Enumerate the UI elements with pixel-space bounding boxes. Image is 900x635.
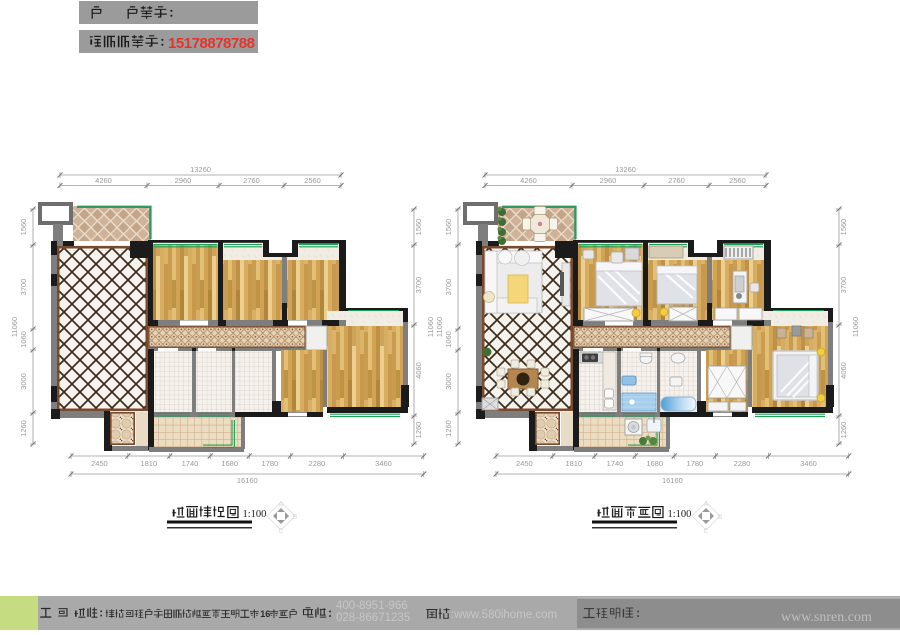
svg-text:13260: 13260 bbox=[615, 165, 636, 174]
svg-text:1260: 1260 bbox=[19, 420, 28, 437]
svg-text:2280: 2280 bbox=[734, 459, 751, 468]
svg-text:16160: 16160 bbox=[237, 476, 258, 485]
svg-text:1780: 1780 bbox=[687, 459, 704, 468]
svg-text:1260: 1260 bbox=[839, 422, 848, 439]
svg-text:1060: 1060 bbox=[19, 331, 28, 348]
svg-text:1560: 1560 bbox=[444, 219, 453, 236]
svg-text:13260: 13260 bbox=[190, 165, 211, 174]
svg-text:1810: 1810 bbox=[565, 459, 582, 468]
svg-text:1:100: 1:100 bbox=[243, 509, 267, 520]
svg-text:4060: 4060 bbox=[414, 362, 423, 379]
svg-text:11060: 11060 bbox=[851, 317, 860, 337]
svg-text:1810: 1810 bbox=[140, 459, 157, 468]
svg-text:3700: 3700 bbox=[19, 279, 28, 296]
svg-text:2960: 2960 bbox=[600, 176, 617, 185]
svg-text:3460: 3460 bbox=[375, 459, 392, 468]
svg-text:16160: 16160 bbox=[662, 476, 683, 485]
svg-text:1560: 1560 bbox=[414, 219, 423, 236]
svg-text:11060: 11060 bbox=[435, 317, 444, 337]
svg-text:B: B bbox=[718, 514, 723, 521]
svg-text:2450: 2450 bbox=[516, 459, 533, 468]
svg-text:3460: 3460 bbox=[800, 459, 817, 468]
svg-text:1740: 1740 bbox=[182, 459, 199, 468]
svg-text:1680: 1680 bbox=[646, 459, 663, 468]
svg-text:1060: 1060 bbox=[444, 331, 453, 348]
svg-text:www.snren.com: www.snren.com bbox=[781, 610, 872, 625]
svg-text:1680: 1680 bbox=[221, 459, 238, 468]
svg-text:2960: 2960 bbox=[175, 176, 192, 185]
svg-text:1260: 1260 bbox=[444, 420, 453, 437]
svg-text:1560: 1560 bbox=[839, 219, 848, 236]
svg-text:4260: 4260 bbox=[95, 176, 112, 185]
svg-text:A: A bbox=[704, 501, 709, 508]
svg-text:2760: 2760 bbox=[668, 176, 685, 185]
svg-text:1560: 1560 bbox=[19, 219, 28, 236]
svg-text:3000: 3000 bbox=[19, 373, 28, 390]
svg-text:028-86671235: 028-86671235 bbox=[336, 612, 410, 624]
svg-text:2560: 2560 bbox=[729, 176, 746, 185]
svg-text:16: 16 bbox=[260, 609, 270, 619]
svg-text:2280: 2280 bbox=[309, 459, 326, 468]
svg-text:2450: 2450 bbox=[91, 459, 108, 468]
svg-text:C: C bbox=[703, 528, 708, 535]
svg-text:1780: 1780 bbox=[262, 459, 279, 468]
svg-text:B: B bbox=[293, 514, 298, 521]
svg-text:2560: 2560 bbox=[304, 176, 321, 185]
svg-text:1260: 1260 bbox=[414, 422, 423, 439]
svg-text:3700: 3700 bbox=[414, 277, 423, 294]
svg-text:A: A bbox=[279, 501, 284, 508]
svg-text:4260: 4260 bbox=[520, 176, 537, 185]
svg-text:2760: 2760 bbox=[243, 176, 260, 185]
svg-text:4060: 4060 bbox=[839, 362, 848, 379]
svg-text:3700: 3700 bbox=[839, 277, 848, 294]
svg-text:400-8951-966: 400-8951-966 bbox=[336, 600, 408, 612]
svg-text:3000: 3000 bbox=[444, 373, 453, 390]
svg-text:C: C bbox=[278, 528, 283, 535]
svg-text:15178878788: 15178878788 bbox=[168, 35, 255, 52]
svg-text:11060: 11060 bbox=[426, 317, 435, 337]
svg-text:1740: 1740 bbox=[607, 459, 624, 468]
svg-text::www.580ihome.com: :www.580ihome.com bbox=[451, 609, 557, 621]
svg-text:3700: 3700 bbox=[444, 279, 453, 296]
svg-text:1:100: 1:100 bbox=[668, 509, 692, 520]
svg-text:11060: 11060 bbox=[10, 317, 19, 337]
